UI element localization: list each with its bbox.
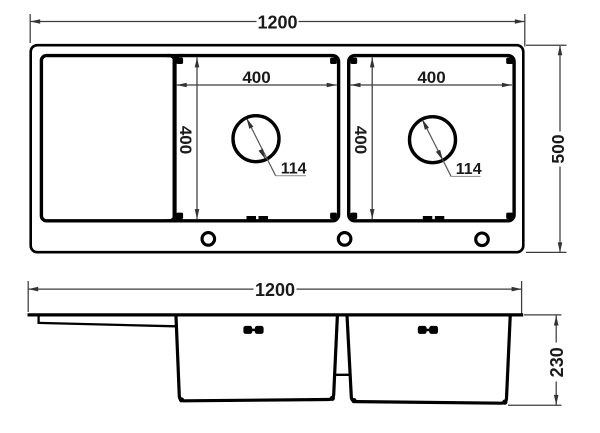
svg-text:500: 500	[548, 134, 568, 163]
svg-text:400: 400	[351, 126, 370, 154]
svg-text:1200: 1200	[257, 12, 297, 32]
svg-text:400: 400	[417, 68, 445, 87]
svg-text:400: 400	[176, 126, 195, 154]
svg-text:400: 400	[242, 68, 270, 87]
svg-text:230: 230	[547, 347, 567, 377]
svg-text:1200: 1200	[255, 280, 295, 300]
svg-text:114: 114	[281, 160, 307, 177]
svg-text:114: 114	[456, 161, 482, 178]
